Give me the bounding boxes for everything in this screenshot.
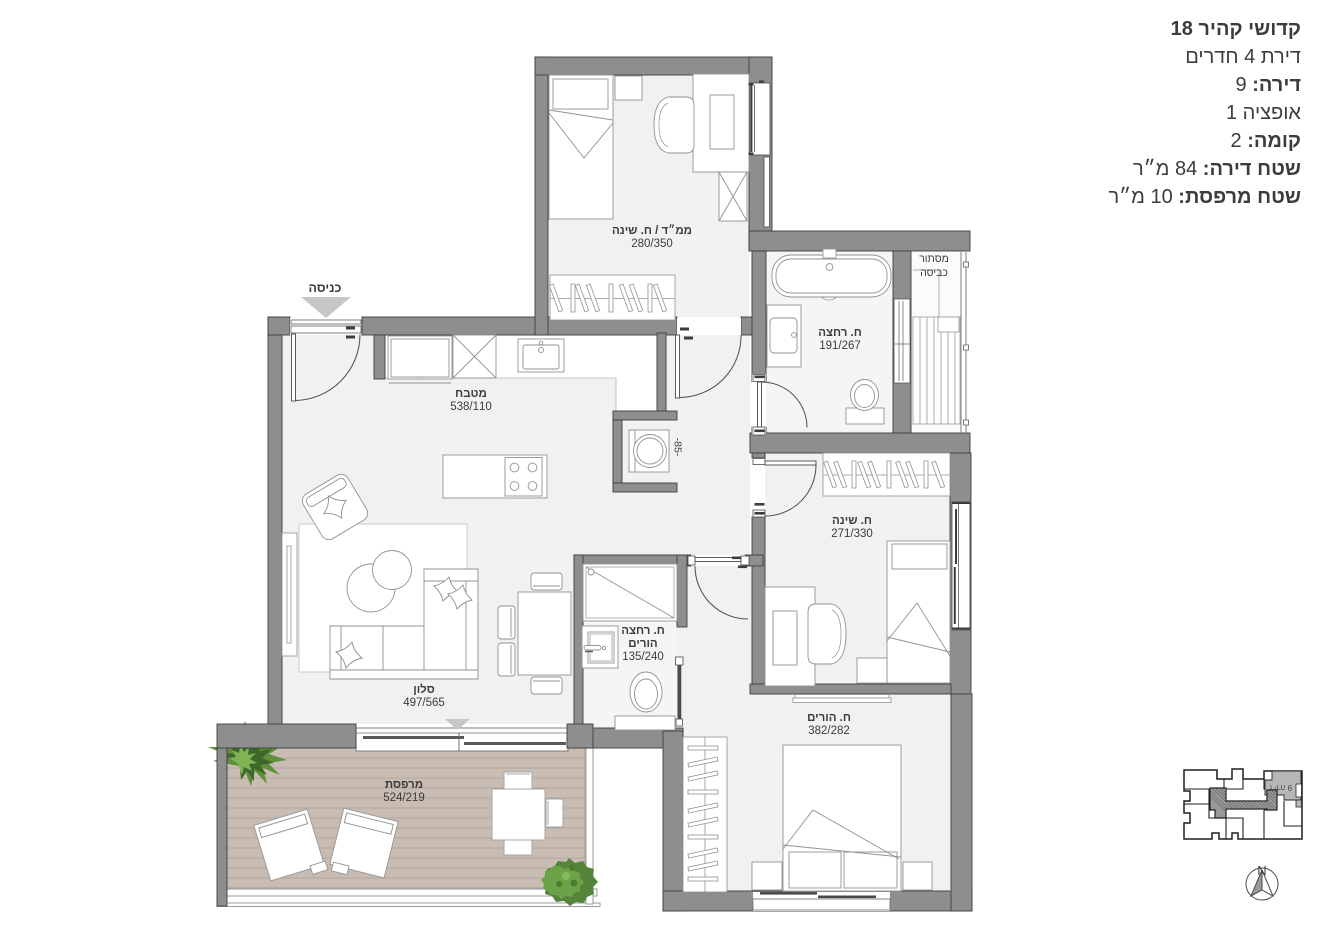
- svg-text:N: N: [1257, 863, 1266, 878]
